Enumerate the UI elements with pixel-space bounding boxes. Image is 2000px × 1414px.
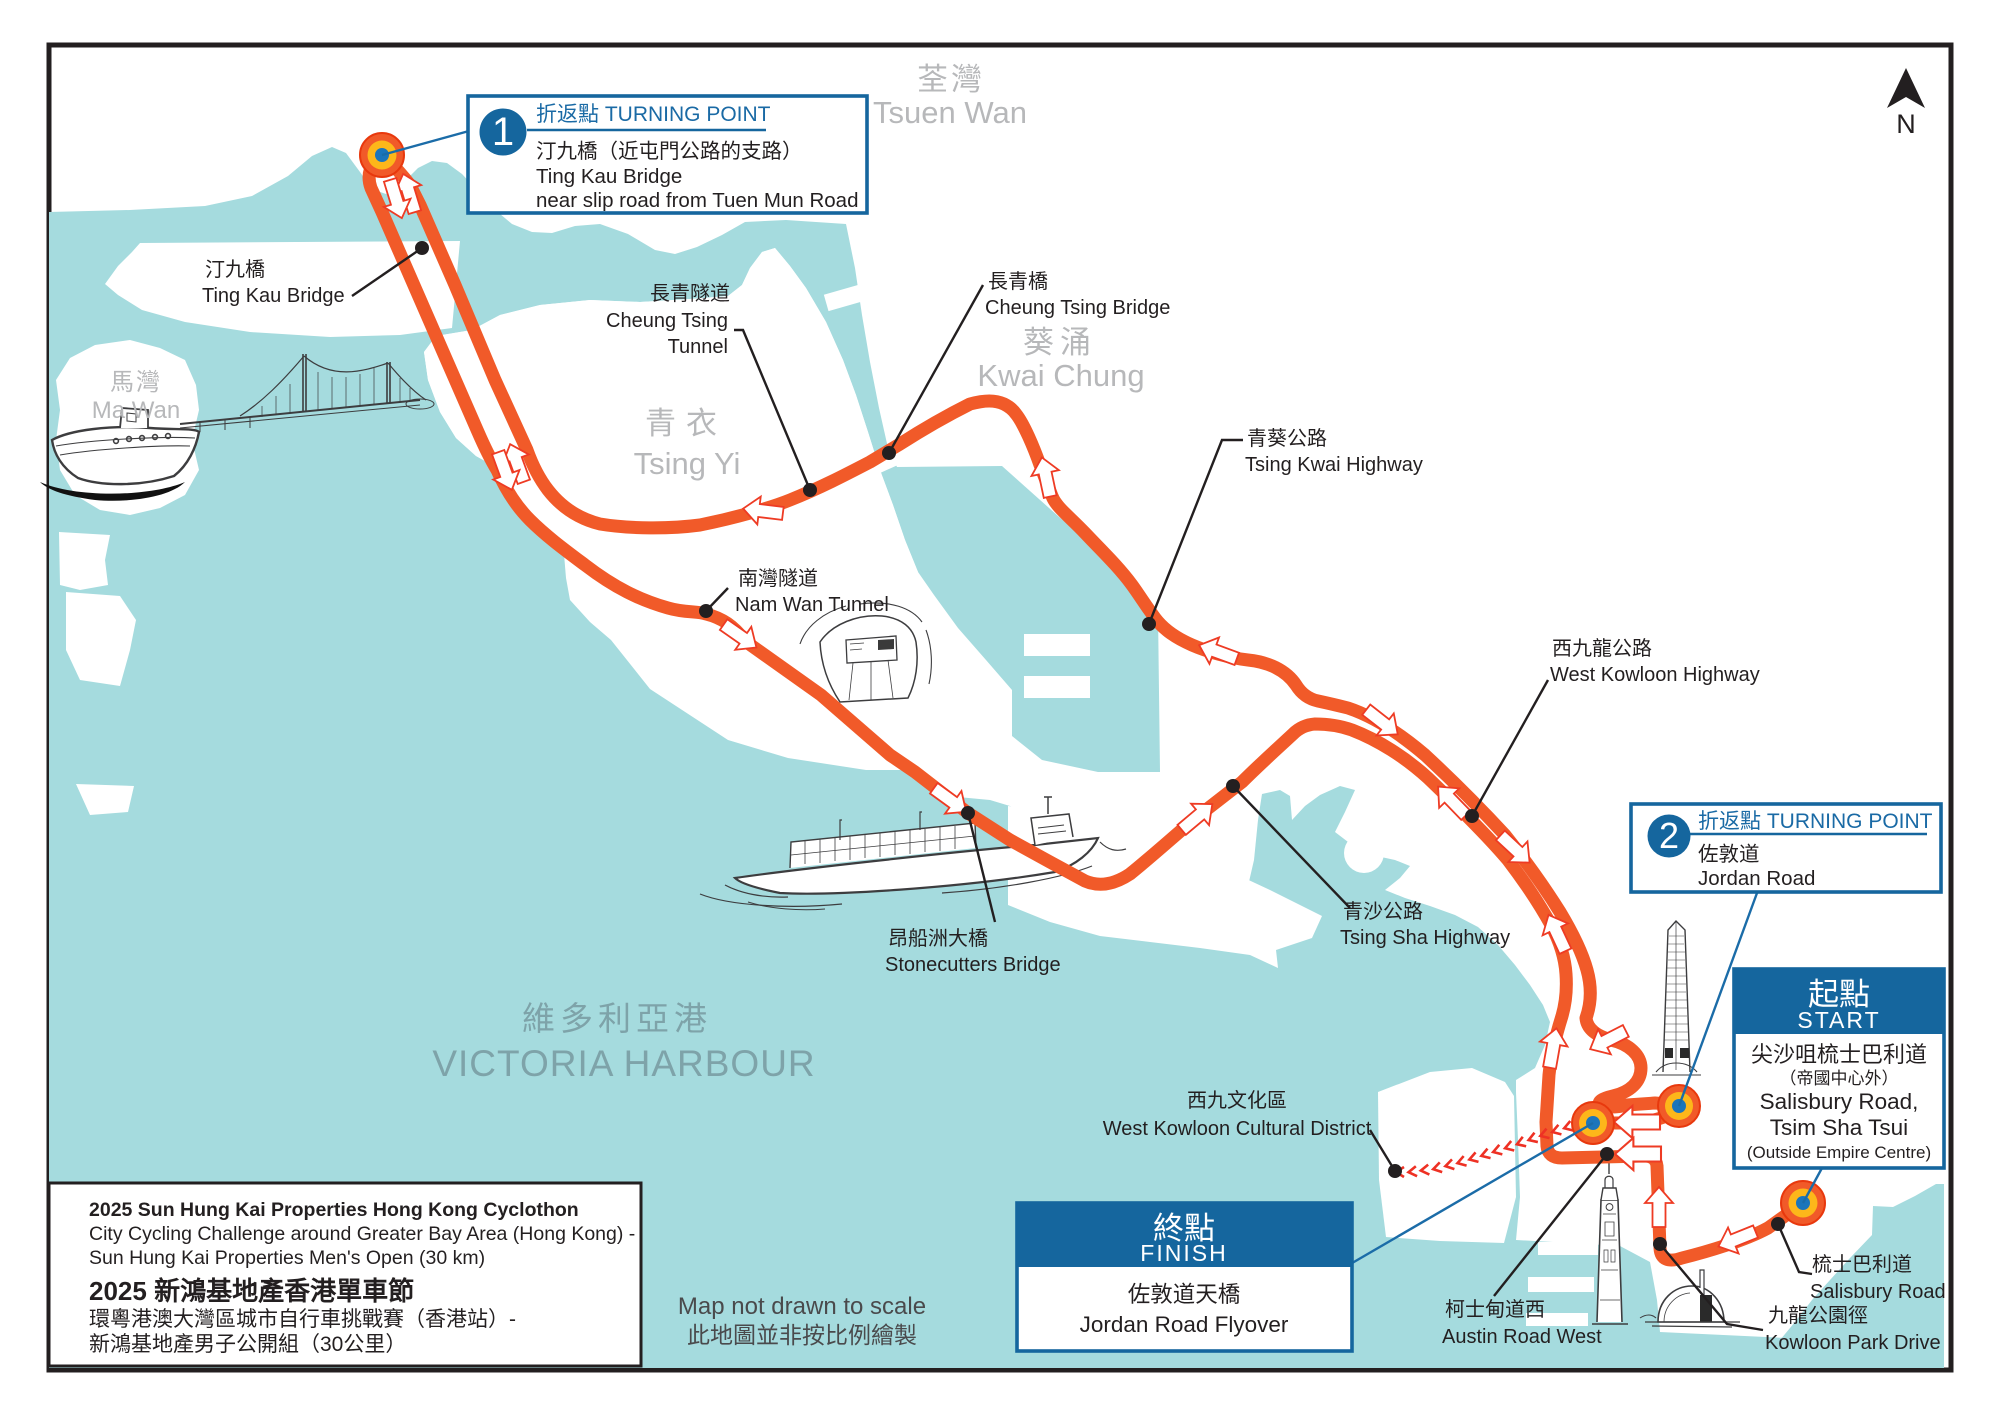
- svg-text:九龍公園徑: 九龍公園徑: [1768, 1304, 1868, 1327]
- svg-text:環粵港澳大灣區城市自行車挑戰賽（香港站）-: 環粵港澳大灣區城市自行車挑戰賽（香港站）-: [89, 1308, 516, 1331]
- svg-text:荃灣: 荃灣: [917, 62, 985, 97]
- svg-text:FINISH: FINISH: [1140, 1240, 1227, 1266]
- svg-text:Ma Wan: Ma Wan: [92, 397, 180, 424]
- svg-text:長青隧道: 長青隧道: [650, 282, 730, 305]
- svg-text:南灣隧道: 南灣隧道: [738, 567, 818, 590]
- svg-text:Kowloon Park Drive: Kowloon Park Drive: [1765, 1332, 1941, 1354]
- svg-text:1: 1: [492, 110, 514, 154]
- svg-text:葵涌: 葵涌: [1023, 325, 1097, 360]
- svg-text:Jordan Road: Jordan Road: [1698, 867, 1815, 890]
- svg-text:尖沙咀梳士巴利道: 尖沙咀梳士巴利道: [1751, 1042, 1927, 1067]
- svg-text:West Kowloon Highway: West Kowloon Highway: [1550, 664, 1760, 686]
- svg-text:Tsuen Wan: Tsuen Wan: [873, 95, 1027, 130]
- svg-text:Tsim Sha Tsui: Tsim Sha Tsui: [1770, 1115, 1908, 1140]
- svg-text:西九文化區: 西九文化區: [1187, 1089, 1287, 1112]
- svg-text:此地圖並非按比例繪製: 此地圖並非按比例繪製: [687, 1322, 917, 1348]
- svg-text:長青橋: 長青橋: [988, 270, 1048, 293]
- svg-text:Tsing Sha Highway: Tsing Sha Highway: [1340, 927, 1510, 949]
- svg-text:Sun Hung Kai Properties Men's: Sun Hung Kai Properties Men's Open (30 k…: [89, 1247, 485, 1269]
- svg-text:near slip road from Tuen Mun R: near slip road from Tuen Mun Road: [536, 189, 858, 212]
- svg-text:City Cycling Challenge around: City Cycling Challenge around Greater Ba…: [89, 1223, 635, 1245]
- svg-text:(Outside Empire Centre): (Outside Empire Centre): [1747, 1143, 1931, 1162]
- svg-text:昂船洲大橋: 昂船洲大橋: [888, 927, 988, 950]
- svg-text:折返點 TURNING POINT: 折返點 TURNING POINT: [536, 103, 771, 126]
- svg-text:青衣: 青衣: [645, 406, 727, 441]
- svg-text:2: 2: [1659, 815, 1679, 856]
- svg-text:Ting Kau Bridge: Ting Kau Bridge: [202, 285, 345, 307]
- svg-text:2025 Sun Hung Kai Properties H: 2025 Sun Hung Kai Properties Hong Kong C…: [89, 1199, 579, 1221]
- svg-text:汀九橋（近屯門公路的支路）: 汀九橋（近屯門公路的支路）: [536, 140, 803, 163]
- svg-text:梳士巴利道: 梳士巴利道: [1812, 1253, 1912, 1276]
- svg-text:維多利亞港: 維多利亞港: [522, 1000, 712, 1037]
- svg-text:2025 新鴻基地產香港單車節: 2025 新鴻基地產香港單車節: [89, 1276, 414, 1306]
- svg-text:Austin Road West: Austin Road West: [1442, 1326, 1602, 1348]
- svg-text:青葵公路: 青葵公路: [1247, 427, 1327, 450]
- svg-text:新鴻基地產男子公開組（30公里）: 新鴻基地產男子公開組（30公里）: [89, 1333, 406, 1356]
- svg-text:西九龍公路: 西九龍公路: [1552, 637, 1652, 660]
- svg-text:Cheung Tsing Bridge: Cheung Tsing Bridge: [985, 297, 1170, 319]
- svg-text:Stonecutters Bridge: Stonecutters Bridge: [885, 954, 1061, 976]
- svg-text:Map not drawn to scale: Map not drawn to scale: [678, 1293, 926, 1320]
- svg-text:Salisbury Road,: Salisbury Road,: [1760, 1089, 1919, 1114]
- svg-text:Cheung Tsing: Cheung Tsing: [606, 310, 728, 332]
- svg-text:Nam Wan Tunnel: Nam Wan Tunnel: [735, 594, 889, 616]
- svg-text:West Kowloon Cultural District: West Kowloon Cultural District: [1103, 1118, 1372, 1140]
- svg-text:佐敦道天橋: 佐敦道天橋: [1128, 1282, 1241, 1307]
- svg-text:柯士甸道西: 柯士甸道西: [1445, 1298, 1545, 1321]
- svg-text:汀九橋: 汀九橋: [205, 258, 265, 281]
- svg-text:Ting Kau Bridge: Ting Kau Bridge: [536, 165, 682, 188]
- svg-text:Tsing Yi: Tsing Yi: [634, 446, 741, 481]
- svg-text:（帝國中心外）: （帝國中心外）: [1780, 1069, 1899, 1088]
- svg-text:佐敦道: 佐敦道: [1698, 843, 1760, 866]
- svg-text:Kwai Chung: Kwai Chung: [977, 358, 1144, 393]
- svg-text:Jordan Road Flyover: Jordan Road Flyover: [1080, 1312, 1289, 1337]
- svg-text:N: N: [1896, 109, 1916, 139]
- svg-text:Salisbury Road: Salisbury Road: [1810, 1281, 1946, 1303]
- svg-text:Tsing Kwai Highway: Tsing Kwai Highway: [1245, 454, 1423, 476]
- svg-text:青沙公路: 青沙公路: [1343, 900, 1423, 923]
- svg-text:START: START: [1797, 1007, 1880, 1033]
- svg-text:馬灣: 馬灣: [110, 369, 162, 396]
- svg-text:VICTORIA HARBOUR: VICTORIA HARBOUR: [432, 1043, 815, 1084]
- svg-text:折返點 TURNING POINT: 折返點 TURNING POINT: [1698, 810, 1933, 833]
- svg-text:Tunnel: Tunnel: [668, 336, 728, 358]
